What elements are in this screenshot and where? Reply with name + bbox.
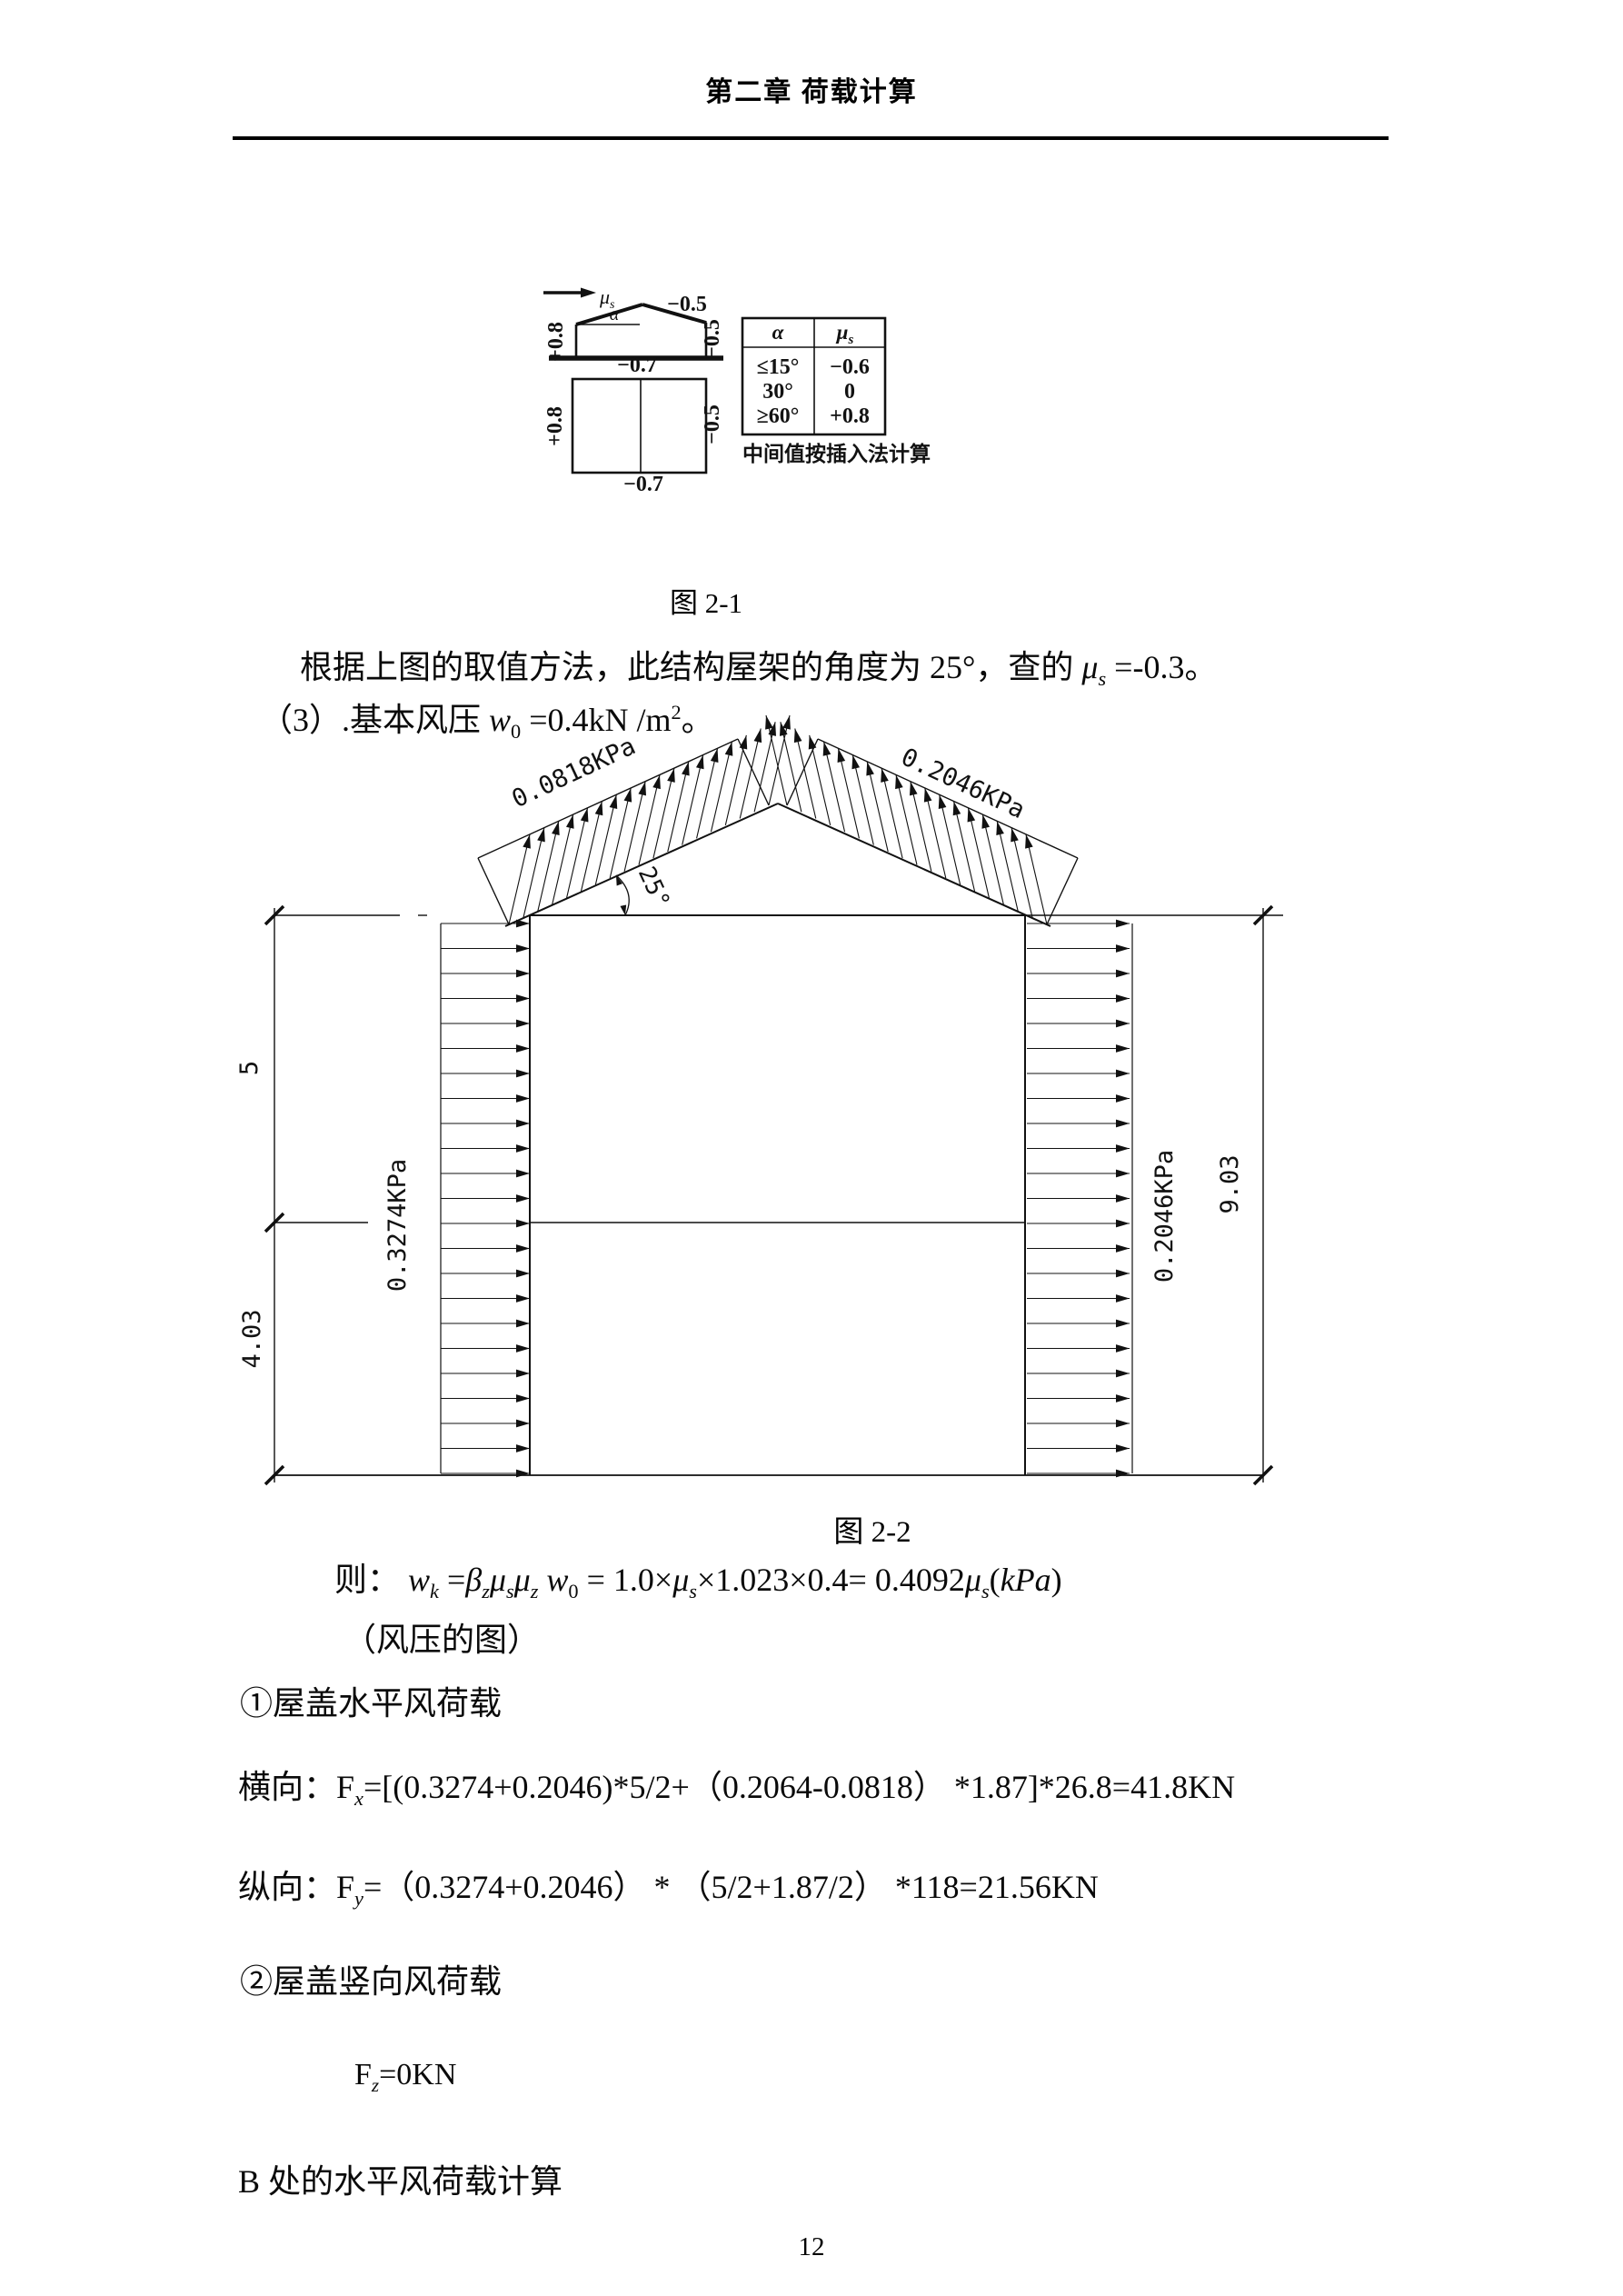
chapter-header: 第二章 荷载计算 <box>0 69 1623 109</box>
formula-fy: 纵向：Fy=（0.3274+0.2046） * （5/2+1.87/2） *11… <box>238 1867 1099 1912</box>
table-header-alpha: α <box>772 321 785 344</box>
arrow-head <box>1116 1394 1130 1403</box>
arrow-head <box>1116 1244 1130 1253</box>
arrow-head <box>1116 1094 1130 1103</box>
arrow-head <box>1116 1220 1130 1228</box>
figure-2-2-caption: 图 2-2 <box>645 1507 1100 1551</box>
plan-left-label: +0.8 <box>543 406 567 446</box>
arrow-head <box>516 920 530 928</box>
table-cell-alpha: ≤15° <box>757 355 800 379</box>
arrow-head <box>516 1044 530 1053</box>
left-wall-pressure-label: 0.3274KPa <box>383 1159 412 1292</box>
dimension-upper-storey: 5 <box>235 1061 264 1075</box>
arrow-head <box>1116 1320 1130 1328</box>
alpha-label: α <box>610 304 620 324</box>
table-cell-alpha: 30° <box>762 380 793 404</box>
roof-right-slope <box>778 804 1050 926</box>
arrow-head <box>516 1220 530 1228</box>
arrow-head <box>516 1244 530 1253</box>
arrow-head <box>516 1370 530 1378</box>
figure-2-1-caption: 图 2-1 <box>488 580 924 621</box>
fig1-drawing: μsα−0.5+0.8−0.5−0.7−0.7+0.8−0.5 <box>543 285 724 496</box>
arrow-head <box>1116 1420 1130 1428</box>
arrow-head <box>516 970 530 978</box>
formula-fz: Fz=0KN <box>354 2056 456 2097</box>
arrow-head <box>1116 1020 1130 1028</box>
arrow-head <box>1116 1344 1130 1353</box>
plan-right-label: −0.5 <box>701 404 724 444</box>
table-cell-mu: −0.6 <box>830 355 870 379</box>
roof-left-pressure-label: 0.0818KPa <box>508 732 641 814</box>
arrow-head <box>1116 1370 1130 1378</box>
arrow-head <box>809 735 817 750</box>
arrow-head <box>1116 994 1130 1003</box>
roof-angle-label: 25° <box>632 863 675 913</box>
left-wall-wind-arrows: 0.3274KPa <box>383 920 530 1478</box>
arrow-head <box>516 1170 530 1178</box>
interpolation-note: 中间值按插入法计算 <box>742 442 931 465</box>
arrow-head <box>1116 944 1130 953</box>
arrow-head <box>740 735 748 750</box>
arrow-shaft <box>509 834 530 924</box>
header-rule <box>233 136 1389 140</box>
arrow-head <box>581 288 596 298</box>
figure-2-2-wind-load-diagram: 54.039.030.0818KPa0.2046KPa25°0.3274KPa0… <box>227 718 1399 1500</box>
arrow-head <box>516 1344 530 1353</box>
arrow-head <box>516 1470 530 1478</box>
arrow-head <box>620 905 626 915</box>
plan-rect <box>573 379 706 473</box>
roof-suction-label: −0.5 <box>667 293 707 316</box>
arrow-head <box>1116 1294 1130 1303</box>
roof-left-slope <box>505 804 778 926</box>
paragraph-roof-angle: 根据上图的取值方法，此结构屋架的角度为 25°，查的 μs =-0.3。 <box>300 647 1217 692</box>
arrow-head <box>516 1070 530 1078</box>
band-right-side <box>738 739 769 805</box>
item-roof-horizontal-wind: ①屋盖水平风荷载 <box>240 1683 502 1724</box>
arrow-head <box>516 1294 530 1303</box>
windward-wall-label: +0.8 <box>544 322 568 362</box>
arrow-head <box>782 715 791 730</box>
table-cell-mu: +0.8 <box>830 404 870 428</box>
arrow-head <box>516 1420 530 1428</box>
arrow-head <box>1116 1470 1130 1478</box>
arrow-head <box>1116 920 1130 928</box>
arrow-head <box>516 1194 530 1203</box>
dimension-total-height: 9.03 <box>1216 1154 1244 1213</box>
arrow-head <box>1116 970 1130 978</box>
arrow-head <box>1116 1120 1130 1128</box>
formula-fx: 横向：Fx=[(0.3274+0.2046)*5/2+（0.2064-0.081… <box>238 1767 1235 1812</box>
arrow-head <box>516 1270 530 1278</box>
arrow-head <box>794 729 802 744</box>
dimension-lower-storey: 4.03 <box>238 1309 266 1368</box>
arrow-head <box>1116 1194 1130 1203</box>
document-page: 第二章 荷载计算 μsα−0.5+0.8−0.5−0.7−0.7+0.8−0.5… <box>0 0 1623 2296</box>
arrow-head <box>516 994 530 1003</box>
table-header-mu: μs <box>836 321 854 347</box>
figure-2-1-wind-coefficient-diagram: μsα−0.5+0.8−0.5−0.7−0.7+0.8−0.5αμs≤15°−0… <box>509 273 945 504</box>
plan-bottom-label: −0.7 <box>623 473 663 496</box>
arrow-head <box>516 1094 530 1103</box>
mu-s-table: αμs≤15°−0.630°0≥60°+0.8 <box>742 318 885 434</box>
arrow-shaft <box>1026 834 1047 924</box>
band-upper-boundary <box>818 739 1078 858</box>
arrow-head <box>754 729 762 744</box>
band-left-side <box>478 858 509 924</box>
arrow-head <box>516 1120 530 1128</box>
arrow-head <box>1116 1070 1130 1078</box>
arrow-head <box>516 1394 530 1403</box>
arrow-head <box>1116 1144 1130 1153</box>
arrow-head <box>1116 1044 1130 1053</box>
arrow-head <box>516 1320 530 1328</box>
section-b-heading: B 处的水平风荷载计算 <box>238 2161 563 2202</box>
note-wind-pressure-figure: （风压的图） <box>344 1620 540 1661</box>
item-roof-vertical-wind: ②屋盖竖向风荷载 <box>240 1962 502 2002</box>
arrow-head <box>516 1020 530 1028</box>
arrow-head <box>1116 1444 1130 1452</box>
page-number: 12 <box>0 2232 1623 2262</box>
plan-top-label: −0.7 <box>617 354 657 377</box>
table-cell-mu: 0 <box>844 380 855 404</box>
band-right-side <box>1047 858 1078 924</box>
right-wall-wind-arrows: 0.2046KPa <box>1027 920 1179 1478</box>
arrow-head <box>765 715 773 730</box>
formula-wk: 则： wk =βzμsμz w0 = 1.0×μs×1.023×0.4= 0.4… <box>334 1560 1062 1604</box>
arrow-head <box>1116 1270 1130 1278</box>
arrow-head <box>516 1444 530 1452</box>
building-outline <box>505 804 1050 1475</box>
arrow-head <box>516 944 530 953</box>
right-wall-pressure-label: 0.2046KPa <box>1150 1150 1179 1283</box>
leeward-wall-label: −0.5 <box>701 319 724 359</box>
arrow-head <box>1116 1170 1130 1178</box>
arrow-head <box>516 1144 530 1153</box>
band-left-side <box>787 739 818 805</box>
table-cell-alpha: ≥60° <box>757 404 800 428</box>
